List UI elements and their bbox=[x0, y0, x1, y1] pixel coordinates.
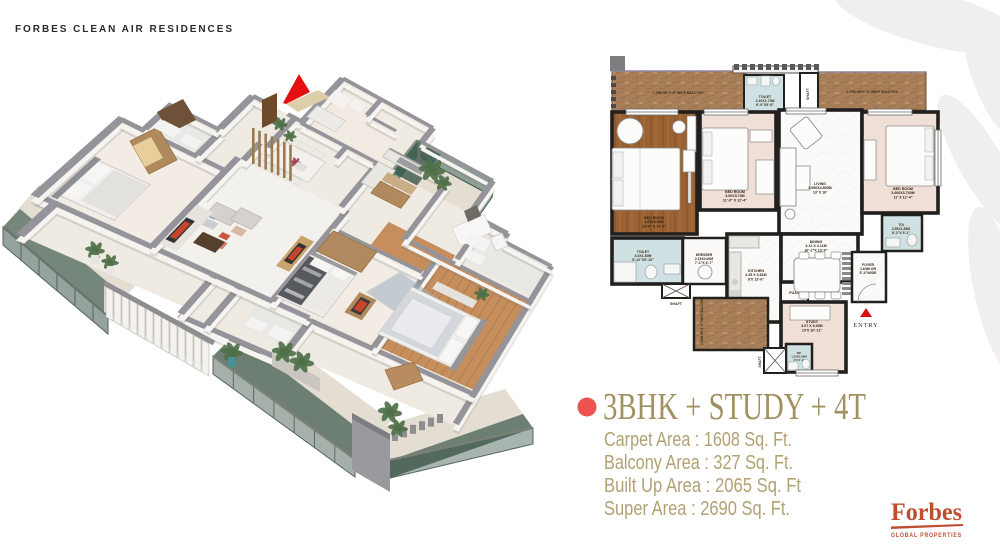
svg-text:Super Area : 2690 Sq. Ft.: Super Area : 2690 Sq. Ft. bbox=[604, 498, 790, 520]
svg-text:1.34M OR 4’-5” WIDE BALCONY: 1.34M OR 4’-5” WIDE BALCONY bbox=[700, 296, 704, 345]
svg-text:BED ROOM3.660X3.730M12’ X 12’-: BED ROOM3.660X3.730M12’ X 12’-4” bbox=[891, 187, 914, 199]
svg-text:DRESSER2.15X2.00M7’-1”X 6’-7”: DRESSER2.15X2.00M7’-1”X 6’-7” bbox=[695, 253, 714, 265]
svg-text:BED ROOM4.05X3.80M13’-4” X 12’: BED ROOM4.05X3.80M13’-4” X 12’-6” bbox=[642, 216, 667, 228]
svg-text:SHAFT: SHAFT bbox=[806, 87, 810, 100]
svg-text:ENTRY: ENTRY bbox=[853, 322, 878, 329]
svg-text:FORBES CLEAN AIR RESIDENCES: FORBES CLEAN AIR RESIDENCES bbox=[15, 24, 234, 35]
svg-text:1.35M OR 6’-6” WIDE BALCONY: 1.35M OR 6’-6” WIDE BALCONY bbox=[652, 91, 704, 95]
svg-text:Built Up Area : 2065 Sq. Ft: Built Up Area : 2065 Sq. Ft bbox=[604, 475, 801, 497]
svg-text:SHAFT: SHAFT bbox=[758, 355, 762, 367]
svg-text:GLOBAL PROPERTIES: GLOBAL PROPERTIES bbox=[891, 532, 962, 539]
svg-text:1.35M OR 6’-6” WIDE BALCONY: 1.35M OR 6’-6” WIDE BALCONY bbox=[846, 90, 898, 94]
svg-text:3BHK + STUDY + 4T: 3BHK + STUDY + 4T bbox=[603, 386, 866, 428]
svg-text:Balcony Area : 327 Sq. Ft.: Balcony Area : 327 Sq. Ft. bbox=[604, 452, 793, 474]
svg-text:Carpet Area : 1608 Sq. Ft.: Carpet Area : 1608 Sq. Ft. bbox=[604, 429, 792, 451]
svg-text:KITCHEN2.45 X 3.81M8’X 12’-6”: KITCHEN2.45 X 3.81M8’X 12’-6” bbox=[745, 269, 766, 281]
svg-text:BED ROOM3.60X3.73M11’-9” X 12’: BED ROOM3.60X3.73M11’-9” X 12’-4” bbox=[723, 190, 747, 202]
svg-text:Forbes: Forbes bbox=[891, 499, 962, 526]
svg-text:SHAFT: SHAFT bbox=[670, 302, 683, 306]
